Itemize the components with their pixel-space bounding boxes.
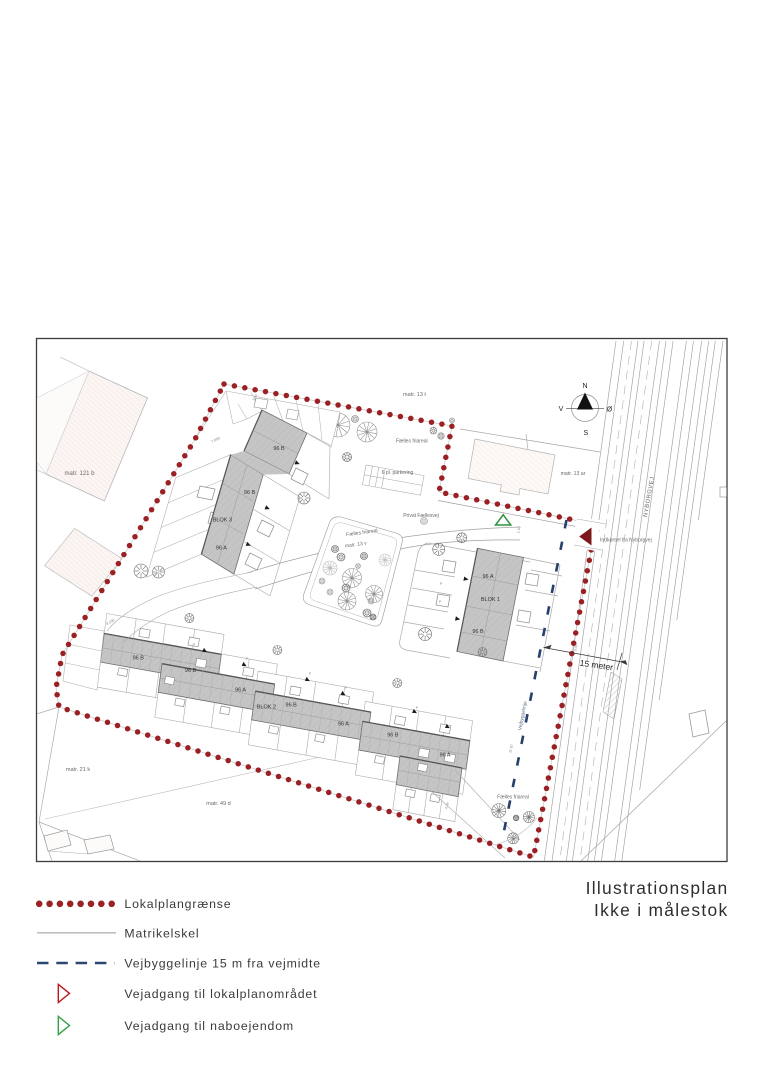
svg-text:96 B: 96 B (185, 668, 197, 674)
svg-text:6 pl. parkering: 6 pl. parkering (382, 470, 414, 476)
svg-text:96 A: 96 A (482, 574, 493, 580)
svg-text:matr. 21 k: matr. 21 k (66, 767, 90, 773)
svg-text:96 A: 96 A (235, 688, 246, 694)
svg-text:Ikke i målestok: Ikke i målestok (594, 900, 729, 920)
svg-text:Fælles friareal: Fælles friareal (396, 439, 428, 445)
svg-text:matr. 13 ar: matr. 13 ar (561, 471, 586, 477)
svg-text:Lokalplangrænse: Lokalplangrænse (124, 897, 231, 911)
svg-text:96 A: 96 A (216, 546, 227, 552)
svg-text:96 B: 96 B (273, 446, 285, 452)
svg-text:Vejbyggelinje 15 m fra vejmidt: Vejbyggelinje 15 m fra vejmidte (124, 956, 321, 970)
svg-text:BLOK 1: BLOK 1 (481, 597, 500, 603)
svg-text:Ø: Ø (607, 407, 613, 414)
svg-text:Indkørsel fra Nyborgvej: Indkørsel fra Nyborgvej (600, 538, 652, 544)
svg-text:Privat Fællesvej: Privat Fællesvej (403, 513, 439, 519)
svg-text:96 B: 96 B (472, 629, 484, 635)
svg-text:96 B: 96 B (133, 656, 145, 662)
svg-text:matr. 13 t: matr. 13 t (403, 392, 426, 398)
svg-text:BLOK 3: BLOK 3 (213, 518, 232, 524)
svg-text:96 A: 96 A (440, 752, 451, 758)
svg-text:96 B: 96 B (286, 702, 298, 708)
svg-text:S: S (583, 430, 588, 437)
svg-text:Illustrationsplan: Illustrationsplan (586, 878, 729, 898)
svg-text:96 A: 96 A (338, 722, 349, 728)
svg-text:96 B: 96 B (244, 490, 256, 496)
svg-text:96 B: 96 B (387, 733, 399, 739)
svg-text:Vejadgang til naboejendom: Vejadgang til naboejendom (124, 1019, 294, 1033)
svg-text:V: V (559, 406, 564, 413)
svg-text:Fælles friareal: Fælles friareal (497, 795, 529, 801)
svg-text:BLOK 2: BLOK 2 (257, 705, 276, 711)
svg-text:Matrikelskel: Matrikelskel (124, 926, 199, 940)
svg-text:Vejadgang til lokalplanområdet: Vejadgang til lokalplanområdet (124, 987, 317, 1001)
svg-text:matr. 49 d: matr. 49 d (206, 801, 230, 807)
svg-text:N: N (582, 383, 587, 390)
svg-text:matr. 121 b: matr. 121 b (64, 471, 95, 477)
